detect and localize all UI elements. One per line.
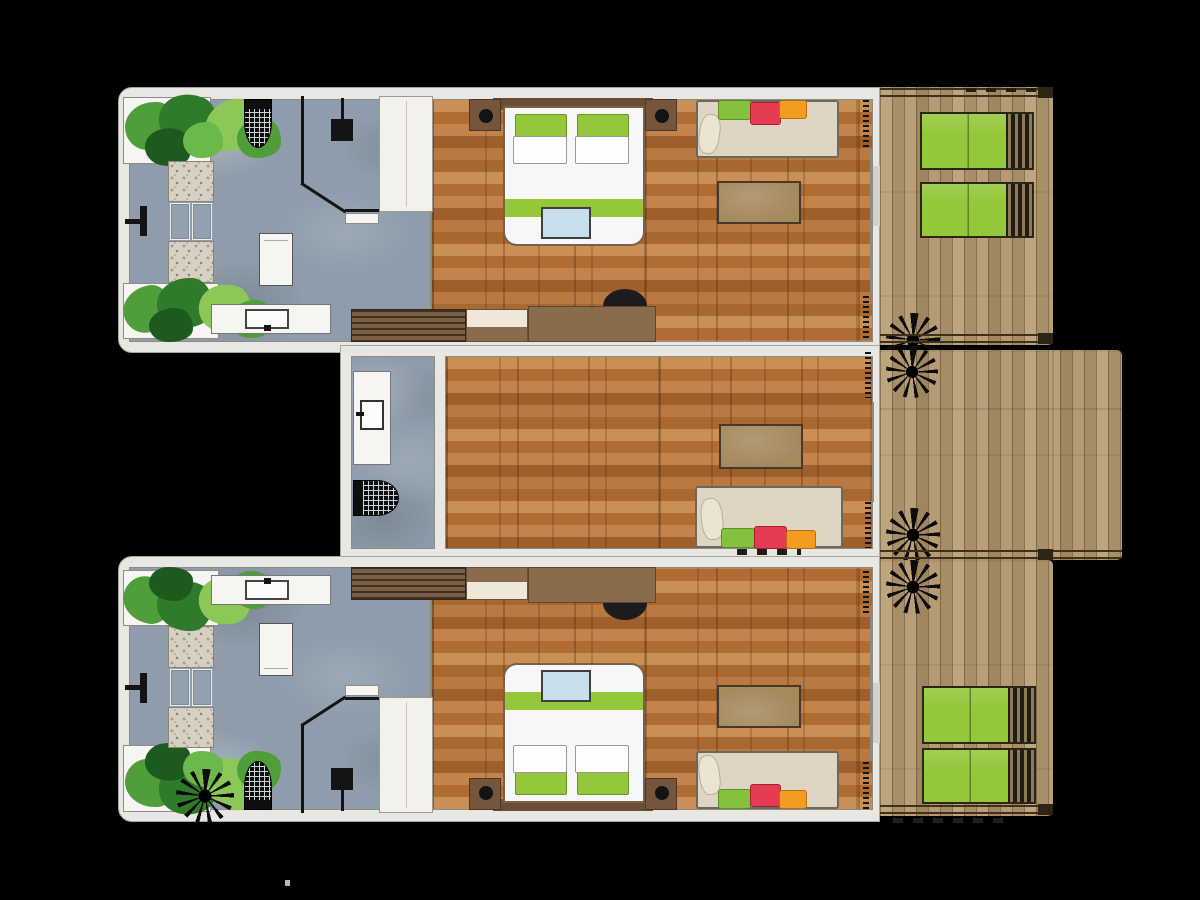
curtain-icon: [863, 569, 869, 613]
deck-rail: [880, 805, 1053, 815]
plant-leaf: [149, 308, 193, 342]
entry-fixture: [331, 768, 353, 790]
deck-seam: [1052, 350, 1054, 560]
rail-end-post: [1038, 87, 1053, 98]
lamp-icon: [655, 109, 669, 123]
curtain-icon: [863, 761, 869, 809]
green-cushion: [718, 100, 751, 120]
pebble-strip: [168, 161, 214, 202]
bed-tray: [541, 670, 591, 702]
wall-shower-icon: [125, 219, 141, 224]
faucet-icon: [264, 578, 271, 584]
daybed: [696, 100, 839, 158]
wall-shower-icon: [140, 206, 147, 236]
lounger-cushion: [922, 114, 1006, 168]
lamp-icon: [479, 786, 493, 800]
door-opening: [873, 683, 880, 743]
villa-middle: [340, 345, 880, 558]
floor-plan-canvas: [0, 0, 1200, 900]
nightstand: [645, 778, 677, 810]
glass-line: [870, 150, 872, 294]
toilet: [259, 623, 293, 676]
palm-tree-icon: [886, 346, 938, 398]
daybed: [695, 486, 843, 548]
curtain-icon: [863, 100, 869, 148]
plant-leaf: [183, 122, 223, 158]
writing-desk: [528, 567, 656, 603]
wall-shower-icon: [140, 673, 147, 703]
palm-tree-icon: [886, 560, 940, 614]
deck-seam: [880, 408, 1122, 410]
curtain-icon: [863, 296, 869, 340]
deck-bottom: [880, 560, 1053, 816]
deck-rail: [880, 334, 1053, 344]
bath-mat: [170, 203, 190, 240]
double-bed: [503, 663, 645, 803]
bed-tray: [541, 207, 591, 239]
entry-fixture: [341, 98, 344, 120]
rail-end-post: [1038, 333, 1053, 344]
vanity: [353, 371, 391, 465]
bath-mat: [170, 669, 190, 706]
faucet-icon: [356, 412, 364, 416]
rain-shower-icon: [244, 761, 272, 810]
orange-cushion: [786, 530, 816, 549]
lounger-backrest: [1008, 688, 1034, 742]
villa-bottom: [118, 556, 880, 822]
green-pillow: [577, 770, 629, 795]
coffee-table: [717, 181, 801, 224]
wardrobe-door-line: [406, 101, 407, 207]
sun-lounger: [922, 686, 1036, 744]
nightstand: [469, 99, 501, 131]
lounger-cushion: [922, 184, 1006, 236]
green-cushion: [721, 528, 755, 548]
rail-end-post: [1038, 804, 1053, 815]
entry-fixture: [341, 789, 344, 811]
door-opening: [873, 166, 880, 226]
red-cushion: [750, 784, 781, 807]
bath-mat: [192, 203, 212, 240]
vanity: [211, 304, 331, 334]
daybed: [696, 751, 839, 809]
nightstand: [645, 99, 677, 131]
partition-wall: [301, 96, 304, 184]
deck-middle: [880, 350, 1122, 560]
glass-line: [872, 402, 874, 502]
villa-bottom-mirror: [119, 557, 879, 821]
lounger-cushion: [924, 688, 1008, 742]
villa-top: [118, 87, 880, 353]
wall-shower-icon: [125, 685, 141, 690]
entry-fixture: [331, 119, 353, 141]
slatted-bench: [351, 567, 466, 600]
partition-wall: [301, 725, 304, 813]
red-cushion: [750, 102, 781, 125]
palm-silhouette-icon: [176, 769, 234, 823]
bath-mat: [192, 669, 212, 706]
deck-steps: [893, 818, 1003, 823]
sun-lounger: [920, 182, 1034, 238]
glass-line: [870, 615, 872, 759]
villa-top-content: [119, 557, 879, 821]
rail-end-post: [1038, 549, 1053, 560]
wardrobe: [379, 697, 433, 813]
coffee-table: [719, 424, 803, 469]
toilet-seat-line: [264, 668, 288, 669]
curtain-icon: [865, 352, 871, 398]
wardrobe-door-line: [406, 702, 407, 808]
entry-shelf: [345, 213, 379, 224]
deck-rail: [880, 550, 1122, 560]
rail-dashes: [966, 88, 1046, 92]
plant-leaf: [149, 567, 193, 601]
white-pillow: [575, 136, 629, 164]
lounger-backrest: [1008, 750, 1034, 802]
faucet-icon: [264, 325, 271, 331]
red-cushion: [754, 526, 787, 549]
lounger-backrest: [1006, 114, 1032, 168]
lounger-backrest: [1006, 184, 1032, 236]
orange-cushion: [779, 100, 807, 119]
pebble-strip: [168, 626, 214, 668]
lamp-icon: [479, 109, 493, 123]
sun-lounger: [922, 748, 1036, 804]
green-cushion: [718, 789, 751, 809]
lamp-icon: [655, 786, 669, 800]
double-bed: [503, 106, 645, 246]
rain-shower-icon: [353, 480, 399, 516]
curtain-icon: [865, 502, 871, 548]
writing-desk: [528, 306, 656, 342]
speck-artifact: [285, 880, 290, 886]
green-pillow: [515, 770, 567, 795]
orange-cushion: [779, 790, 807, 809]
upholstered-bench: [466, 567, 528, 600]
nightstand: [469, 778, 501, 810]
coffee-table: [717, 685, 801, 728]
sun-lounger: [920, 112, 1034, 170]
upholstered-bench: [466, 309, 528, 342]
lounger-cushion: [924, 750, 1008, 802]
villa-top-content: [119, 88, 879, 352]
deck-top: [880, 87, 1053, 345]
deck-rail: [880, 88, 1053, 98]
pebble-strip: [168, 707, 214, 748]
white-pillow: [513, 745, 567, 773]
door-track: [737, 549, 801, 555]
partition-wall: [345, 209, 381, 212]
entry-shelf: [345, 685, 379, 696]
pebble-strip: [168, 241, 214, 283]
white-pillow: [513, 136, 567, 164]
toilet: [259, 233, 293, 286]
partition-wall: [345, 697, 381, 700]
white-pillow: [575, 745, 629, 773]
slatted-bench: [351, 309, 466, 342]
vanity: [211, 575, 331, 605]
toilet-seat-line: [264, 240, 288, 241]
wardrobe: [379, 96, 433, 212]
